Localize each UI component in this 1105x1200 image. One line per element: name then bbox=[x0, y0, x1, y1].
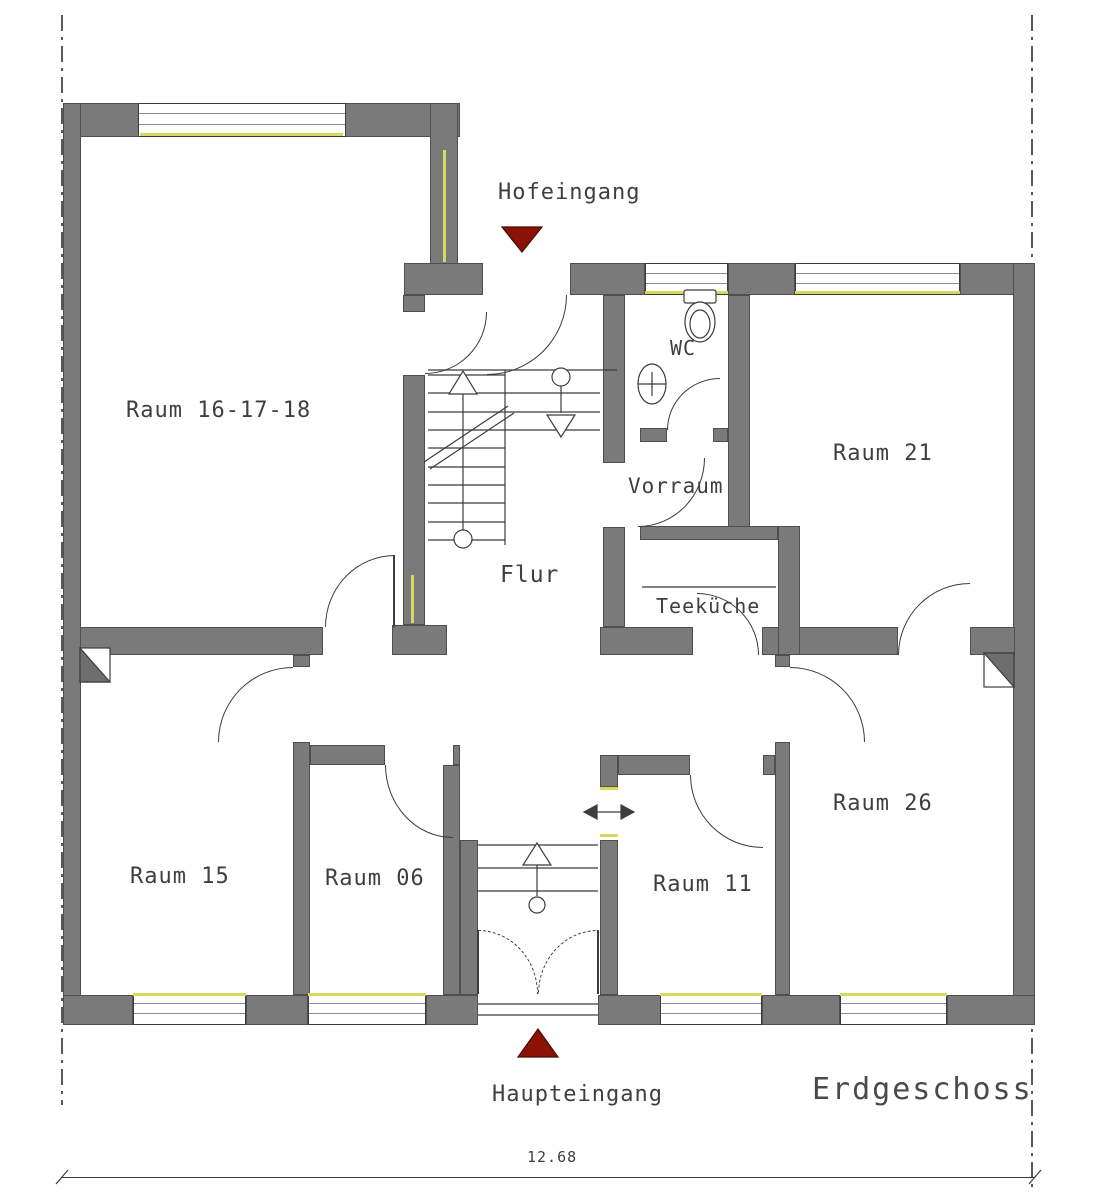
sliding-door-jamb bbox=[600, 787, 618, 790]
hofeingang-marker-triangle bbox=[502, 227, 542, 252]
window bbox=[138, 103, 346, 137]
wall bbox=[640, 526, 778, 540]
room-label-vorraum: Vorraum bbox=[628, 474, 724, 498]
wall bbox=[460, 840, 478, 995]
wall bbox=[713, 428, 728, 442]
wall bbox=[1013, 263, 1035, 1025]
wall bbox=[310, 745, 385, 765]
door-arc-raum-16-corridor bbox=[325, 555, 395, 627]
wall bbox=[293, 742, 310, 995]
room-label-teekueche: Teeküche bbox=[656, 594, 760, 618]
wall bbox=[403, 375, 425, 625]
wall bbox=[603, 295, 625, 463]
door-arc-raum-06 bbox=[385, 765, 453, 838]
stair-down-arrowhead bbox=[547, 415, 575, 437]
window-sill bbox=[645, 291, 728, 294]
floor-title: Erdgeschoss bbox=[812, 1072, 1033, 1107]
window-sill bbox=[795, 291, 960, 294]
corner-marker-right bbox=[984, 653, 1014, 687]
room-label-raum-06: Raum 06 bbox=[325, 866, 425, 891]
door-arc-hall-to-raum-16 bbox=[425, 312, 487, 374]
door-leaf bbox=[477, 930, 479, 994]
wall bbox=[600, 840, 618, 995]
wall bbox=[63, 995, 133, 1025]
window bbox=[840, 993, 947, 1025]
door-arc-raum-26 bbox=[790, 667, 865, 742]
entry-door-arc-right bbox=[538, 930, 598, 994]
main-staircase bbox=[424, 368, 617, 548]
wall bbox=[600, 755, 618, 787]
stair-break-line bbox=[430, 413, 514, 469]
door-arc-hofeingang bbox=[487, 295, 567, 375]
wall bbox=[778, 526, 800, 655]
window-sill bbox=[133, 993, 246, 996]
door-leaf bbox=[597, 930, 599, 994]
floor-plan-canvas: Raum 16-17-18 Raum 21 Raum 15 Raum 06 Ra… bbox=[0, 0, 1105, 1200]
wall bbox=[404, 263, 483, 295]
hofeingang-label: Hofeingang bbox=[498, 180, 640, 205]
wall bbox=[728, 263, 795, 295]
stair-arrow-origin bbox=[552, 368, 570, 386]
door-arc-wc bbox=[667, 378, 720, 430]
stair-arrow-origin bbox=[529, 897, 545, 913]
wall bbox=[80, 627, 323, 655]
door-arc-raum-21 bbox=[898, 583, 970, 655]
room-label-raum-15: Raum 15 bbox=[130, 864, 230, 889]
window bbox=[308, 993, 426, 1025]
wall bbox=[426, 995, 478, 1025]
wall bbox=[453, 745, 460, 765]
wall bbox=[600, 627, 693, 655]
wall-joint-mark bbox=[443, 150, 446, 262]
door-arc-raum-15 bbox=[218, 667, 293, 742]
room-label-raum-21: Raum 21 bbox=[833, 441, 933, 466]
room-label-flur: Flur bbox=[500, 562, 559, 588]
sliding-door-arrow bbox=[584, 805, 634, 819]
haupteingang-marker-triangle bbox=[518, 1029, 558, 1057]
door-arc-raum-11 bbox=[690, 775, 763, 848]
wall bbox=[570, 263, 645, 295]
entry-door-arc-left bbox=[478, 930, 538, 994]
wall bbox=[947, 995, 1035, 1025]
window-sill bbox=[308, 993, 426, 996]
haupteingang-label: Haupteingang bbox=[492, 1082, 663, 1107]
wall bbox=[293, 655, 310, 667]
wall bbox=[63, 103, 81, 1025]
stair-arrow-origin bbox=[454, 530, 472, 548]
wall bbox=[763, 755, 775, 775]
window bbox=[133, 993, 246, 1025]
window bbox=[660, 993, 762, 1025]
wall bbox=[775, 655, 790, 667]
wall bbox=[603, 527, 625, 627]
wall bbox=[598, 995, 662, 1025]
wall bbox=[246, 995, 308, 1025]
window-sill bbox=[140, 133, 343, 136]
room-label-raum-16-17-18: Raum 16-17-18 bbox=[126, 398, 311, 423]
wall bbox=[762, 995, 840, 1025]
wall bbox=[970, 627, 1015, 655]
window-sill bbox=[840, 993, 947, 996]
room-label-raum-26: Raum 26 bbox=[833, 791, 933, 816]
room-label-wc: WC bbox=[670, 336, 696, 360]
room-label-raum-11: Raum 11 bbox=[653, 872, 753, 897]
wall bbox=[403, 295, 425, 312]
wall bbox=[392, 625, 447, 655]
wall bbox=[728, 295, 750, 540]
dimension-line bbox=[62, 1177, 1035, 1178]
wall bbox=[775, 742, 790, 995]
dimension-value: 12.68 bbox=[527, 1148, 577, 1166]
wall-joint-mark bbox=[411, 575, 414, 623]
stair-break-line bbox=[424, 406, 508, 462]
window-sill bbox=[660, 993, 762, 996]
toilet-icon bbox=[684, 290, 716, 342]
wall bbox=[640, 428, 667, 442]
wall bbox=[618, 755, 690, 775]
stair-up-arrowhead bbox=[523, 843, 551, 865]
door-leaf bbox=[393, 555, 395, 627]
sink-icon bbox=[638, 364, 666, 404]
sliding-door-jamb bbox=[600, 834, 618, 837]
stair-up-arrowhead bbox=[449, 371, 477, 394]
